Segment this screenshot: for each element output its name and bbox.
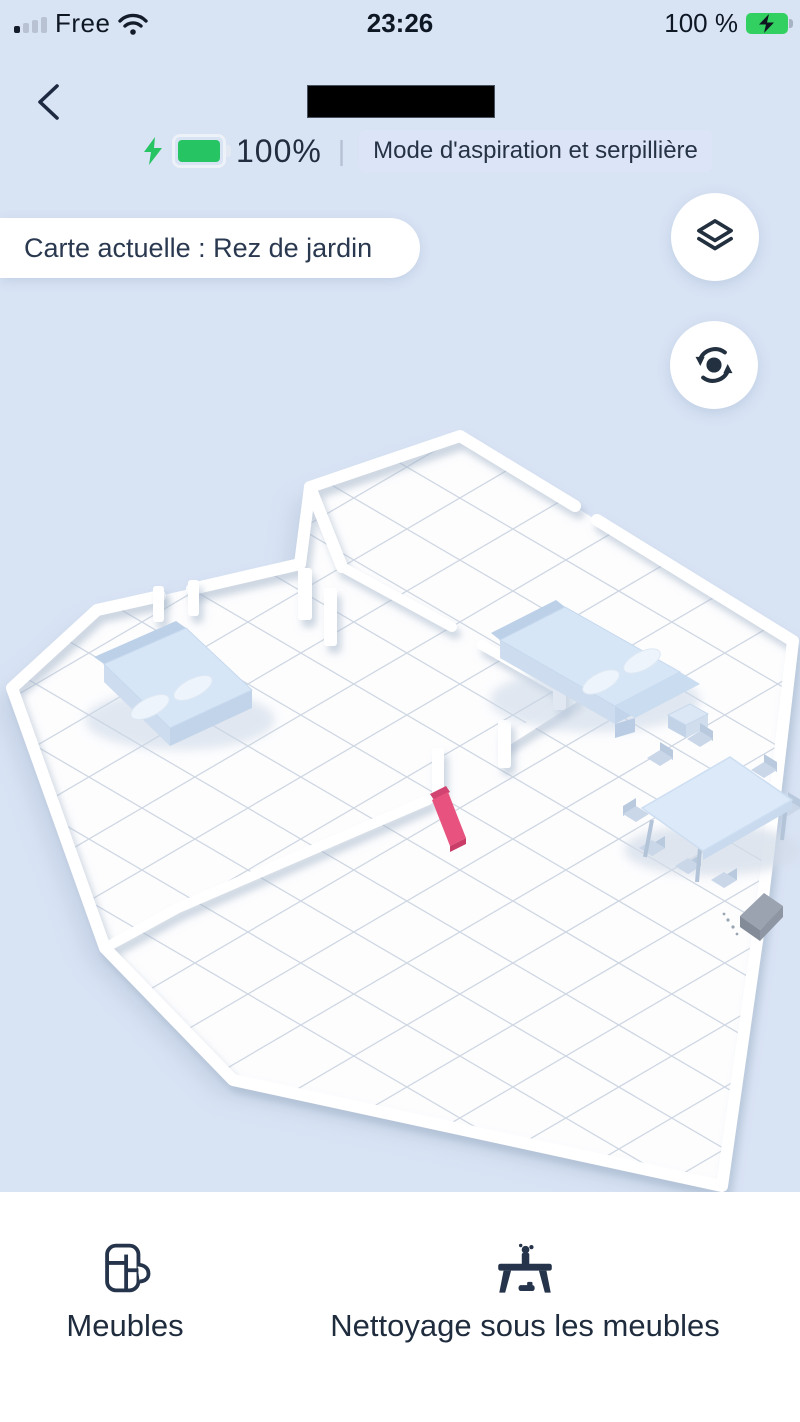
robot-vacuum-map-screen: Free 23:26 100 % <box>0 0 800 1422</box>
layers-icon <box>692 214 738 260</box>
rotate-sync-icon <box>690 341 738 389</box>
map-rotate-button[interactable] <box>670 321 758 409</box>
map-layers-button[interactable] <box>671 193 759 281</box>
back-button[interactable] <box>30 80 74 124</box>
furniture-label: Meubles <box>66 1308 183 1344</box>
status-bar: Free 23:26 100 % <box>0 0 800 46</box>
device-title-redacted <box>308 86 494 117</box>
furniture-button[interactable]: Meubles <box>40 1240 210 1344</box>
clean-under-furniture-label: Nettoyage sous les meubles <box>330 1308 719 1344</box>
current-map-banner: Carte actuelle : Rez de jardin <box>0 218 420 278</box>
battery-percent-label: 100 % <box>664 8 738 39</box>
battery-charging-icon <box>746 13 788 34</box>
status-right: 100 % <box>664 8 788 39</box>
furniture-cabinet-icon <box>97 1240 153 1296</box>
current-map-label: Carte actuelle : Rez de jardin <box>0 233 372 264</box>
bottom-action-bar: Meubles Nettoyage sous les meubles <box>0 1192 800 1422</box>
robot-status-row: 100% | Mode d'aspiration et serpillière <box>142 130 712 172</box>
robot-battery-icon <box>172 134 226 168</box>
table-with-robot-icon <box>495 1240 555 1296</box>
floor-map-3d[interactable] <box>0 420 800 1192</box>
charging-bolt-icon <box>142 136 164 166</box>
cleaning-mode-badge[interactable]: Mode d'aspiration et serpillière <box>359 130 712 172</box>
clean-under-furniture-button[interactable]: Nettoyage sous les meubles <box>290 1240 760 1344</box>
robot-battery-level: 100% <box>236 133 322 170</box>
divider: | <box>338 135 345 167</box>
chevron-left-icon <box>30 80 74 124</box>
